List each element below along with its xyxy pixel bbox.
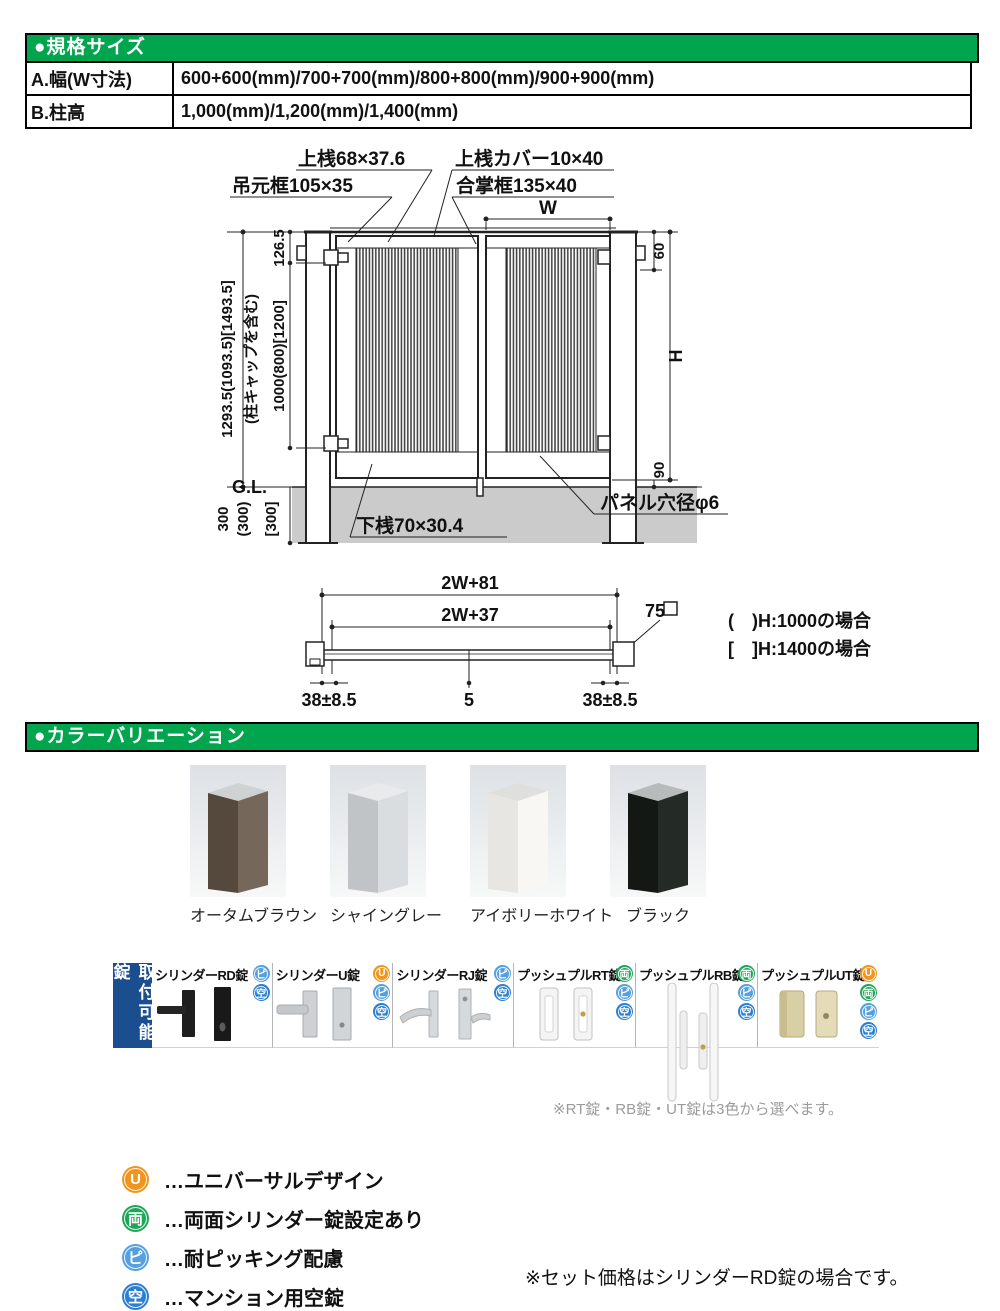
pi-icon: ピ: [860, 1003, 877, 1020]
dim-60: 60: [651, 243, 668, 260]
lock-photo-u: [275, 983, 375, 1045]
color-swatch-autumn-brown: オータムブラウン: [190, 765, 286, 926]
post-front-face: [378, 791, 408, 893]
color-variation-header: ●カラーバリエーション: [25, 722, 979, 752]
post-image: [470, 765, 566, 897]
post-side-face: [208, 793, 238, 893]
color-swatch-ivory-white: アイボリーホワイト: [470, 765, 566, 926]
dim-38-left: 38±8.5: [302, 690, 357, 710]
spec-row-height-label: B.柱高: [27, 96, 174, 127]
attachable-locks-section: 取付可能錠 シリンダーRD錠 ピ 空 シリンダーU錠 U ピ 空: [113, 963, 879, 1048]
dim-90: 90: [651, 462, 668, 479]
lock-cell-pushpull-rb: プッシュプルRB錠 両 ピ 空: [636, 963, 758, 1048]
ku-icon: 空: [738, 1003, 755, 1020]
dim-300: 300: [215, 506, 232, 531]
ku-icon: 空: [253, 984, 270, 1001]
label-top-cover: 上桟カバー10×40: [455, 147, 603, 170]
lock-cell-cylinder-rj: シリンダーRJ錠 ピ 空: [393, 963, 514, 1048]
dim-126-5: 126.5: [271, 229, 288, 267]
pi-icon: ピ: [738, 984, 755, 1001]
ryo-icon: 両: [616, 965, 633, 982]
label-hanging-stile: 吊元框105×35: [232, 174, 353, 197]
swatch-label: ブラック: [610, 902, 706, 926]
right-gate-leaf: [477, 236, 610, 496]
swatch-label: アイボリーホワイト: [470, 902, 566, 926]
legend-label: …マンション用空錠: [164, 1282, 344, 1311]
pi-icon: ピ: [253, 965, 270, 982]
table-row: A.幅(W寸法) 600+600(mm)/700+700(mm)/800+800…: [27, 63, 970, 94]
dim-38-right: 38±8.5: [583, 690, 638, 710]
lock-photo-rd: [154, 983, 254, 1045]
dim-h: H: [666, 350, 686, 363]
post-front-face: [658, 791, 688, 893]
attachable-locks-side-label: 取付可能錠: [113, 963, 152, 1048]
legend-label: …両面シリンダー錠設定あり: [164, 1204, 424, 1233]
post-side-face: [488, 793, 518, 893]
lock-feature-icons: U ピ 空: [373, 965, 390, 1020]
ku-icon: 空: [122, 1283, 149, 1310]
dim-75: 75: [645, 601, 665, 621]
dim-2w37: 2W+37: [441, 605, 499, 625]
ku-icon: 空: [616, 1003, 633, 1020]
lock-cell-pushpull-ut: プッシュプルUT錠 U 両 ピ 空: [758, 963, 879, 1048]
dim-w: W: [539, 198, 557, 219]
note-h1000: ( )H:1000の場合: [728, 610, 872, 631]
post-front-face: [238, 791, 268, 893]
color-swatch-black: ブラック: [610, 765, 706, 926]
post-image: [610, 765, 706, 897]
label-top-rail: 上桟68×37.6: [298, 147, 405, 170]
lock-photo-rt: [516, 983, 616, 1045]
post-side-face: [628, 793, 658, 893]
u-icon: U: [122, 1166, 149, 1193]
u-icon: U: [373, 965, 390, 982]
post-image: [330, 765, 426, 897]
table-row: B.柱高 1,000(mm)/1,200(mm)/1,400(mm): [27, 94, 970, 127]
spec-size-header: ●規格サイズ: [25, 33, 979, 63]
lock-feature-icons: 両 ピ 空: [616, 965, 633, 1020]
legend-row-anti-picking: ピ …耐ピッキング配慮: [122, 1238, 424, 1277]
swatch-label: オータムブラウン: [190, 902, 286, 926]
lock-feature-icons: U 両 ピ 空: [860, 965, 877, 1039]
ku-icon: 空: [494, 984, 511, 1001]
gate-technical-drawing: 上桟68×37.6 上桟カバー10×40 吊元框105×35 合掌框135×40…: [0, 140, 1000, 715]
dim-cap-note: (柱キャップを含む): [242, 294, 260, 424]
lock-photo-rj: [395, 983, 495, 1045]
lock-photo-ut: [760, 983, 860, 1045]
lock-feature-icons: ピ 空: [494, 965, 511, 1001]
pi-icon: ピ: [373, 984, 390, 1001]
post-image: [190, 765, 286, 897]
ryo-icon: 両: [738, 965, 755, 982]
spec-row-width-value: 600+600(mm)/700+700(mm)/800+800(mm)/900+…: [174, 63, 970, 94]
u-icon: U: [860, 965, 877, 982]
dim-1000: 1000(800)[1200]: [271, 300, 288, 412]
pi-icon: ピ: [616, 984, 633, 1001]
dim-300-paren: (300): [235, 501, 252, 536]
pi-icon: ピ: [122, 1244, 149, 1271]
dim-5: 5: [464, 690, 474, 710]
post-front-face: [518, 791, 548, 893]
left-gate-leaf: [336, 236, 478, 478]
color-swatch-shine-gray: シャイングレー: [330, 765, 426, 926]
legend-row-universal: U …ユニバーサルデザイン: [122, 1160, 424, 1199]
catalog-page: ●規格サイズ A.幅(W寸法) 600+600(mm)/700+700(mm)/…: [0, 0, 1000, 1311]
legend-row-double-cylinder: 両 …両面シリンダー錠設定あり: [122, 1199, 424, 1238]
set-price-footnote: ※セット価格はシリンダーRD錠の場合です。: [525, 1263, 908, 1290]
lock-feature-icons: ピ 空: [253, 965, 270, 1001]
ryo-icon: 両: [860, 984, 877, 1001]
lock-photo-rb: [638, 983, 748, 1105]
ku-icon: 空: [373, 1003, 390, 1020]
dim-2w81: 2W+81: [441, 573, 499, 593]
label-bottom-rail: 下桟70×30.4: [356, 514, 464, 537]
lock-feature-icons: 両 ピ 空: [738, 965, 755, 1020]
swatch-label: シャイングレー: [330, 902, 426, 926]
ryo-icon: 両: [122, 1205, 149, 1232]
dim-300-bracket: [300]: [263, 501, 280, 536]
spec-row-height-value: 1,000(mm)/1,200(mm)/1,400(mm): [174, 96, 970, 127]
post-side-face: [348, 793, 378, 893]
label-meeting-stile: 合掌框135×40: [456, 174, 577, 197]
legend-label: …耐ピッキング配慮: [164, 1243, 343, 1272]
label-gl: G.L.: [232, 477, 267, 497]
legend-row-mansion-latch: 空 …マンション用空錠: [122, 1277, 424, 1311]
dim-total-height: 1293.5(1093.5)[1493.5]: [219, 280, 236, 438]
plan-view: [306, 588, 677, 688]
ku-icon: 空: [860, 1022, 877, 1039]
label-panel-hole: パネル穴径φ6: [600, 491, 719, 514]
icon-legend: U …ユニバーサルデザイン 両 …両面シリンダー錠設定あり ピ …耐ピッキング配…: [122, 1160, 424, 1311]
spec-table: A.幅(W寸法) 600+600(mm)/700+700(mm)/800+800…: [25, 63, 972, 129]
lock-cell-cylinder-rd: シリンダーRD錠 ピ 空: [152, 963, 273, 1048]
note-h1400: [ ]H:1400の場合: [728, 638, 872, 659]
spec-row-width-label: A.幅(W寸法): [27, 63, 174, 94]
lock-cell-cylinder-u: シリンダーU錠 U ピ 空: [273, 963, 394, 1048]
pi-icon: ピ: [494, 965, 511, 982]
legend-label: …ユニバーサルデザイン: [164, 1165, 384, 1194]
lock-cell-pushpull-rt: プッシュプルRT錠 両 ピ 空: [514, 963, 636, 1048]
